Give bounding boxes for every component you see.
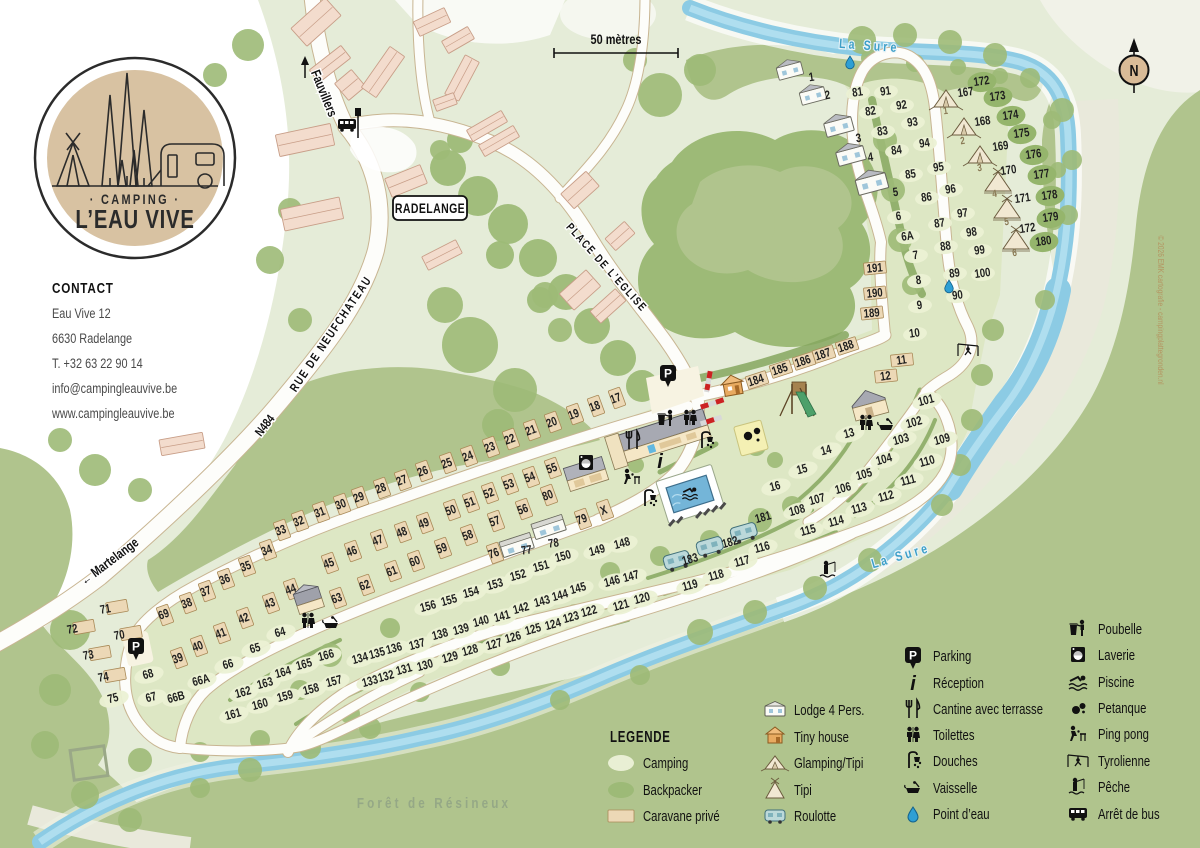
svg-text:6630 Radelange: 6630 Radelange [52, 331, 132, 347]
svg-text:Tipi: Tipi [794, 782, 812, 799]
svg-text:71: 71 [99, 602, 112, 617]
svg-text:189: 189 [863, 306, 880, 321]
svg-text:176: 176 [1025, 147, 1043, 162]
svg-text:98: 98 [965, 225, 977, 240]
svg-text:www.campingleauvive.be: www.campingleauvive.be [51, 406, 174, 422]
svg-text:info@campingleauvive.be: info@campingleauvive.be [52, 381, 177, 397]
svg-text:Caravane privé: Caravane privé [643, 808, 720, 825]
svg-text:Cantine avec terrasse: Cantine avec terrasse [933, 701, 1043, 718]
svg-text:90: 90 [951, 288, 963, 303]
svg-text:L’EAU VIVE: L’EAU VIVE [75, 205, 194, 234]
svg-text:178: 178 [1041, 188, 1059, 203]
svg-text:70: 70 [113, 628, 126, 643]
svg-text:Douches: Douches [933, 753, 978, 770]
svg-text:CONTACT: CONTACT [52, 280, 114, 297]
svg-text:T. +32 63 22 90 14: T. +32 63 22 90 14 [52, 356, 143, 372]
svg-text:91: 91 [879, 84, 891, 99]
svg-text:Toilettes: Toilettes [933, 727, 975, 744]
svg-text:168: 168 [974, 114, 992, 129]
svg-text:78: 78 [547, 536, 559, 551]
svg-text:93: 93 [906, 115, 918, 130]
svg-text:87: 87 [933, 216, 945, 231]
svg-text:Petanque: Petanque [1098, 700, 1146, 717]
svg-text:12: 12 [879, 369, 891, 384]
svg-text:Piscine: Piscine [1098, 674, 1134, 691]
svg-text:© 2026 EMK cartografie - campi: © 2026 EMK cartografie - campingplattegr… [1156, 235, 1166, 384]
svg-text:86: 86 [920, 190, 932, 205]
svg-text:77: 77 [520, 543, 532, 558]
svg-text:92: 92 [895, 98, 907, 113]
svg-text:81: 81 [851, 85, 863, 100]
svg-text:82: 82 [864, 104, 876, 119]
svg-text:180: 180 [1035, 234, 1053, 249]
svg-text:174: 174 [1002, 108, 1020, 124]
svg-text:177: 177 [1033, 167, 1051, 182]
svg-text:Arrêt de bus: Arrêt de bus [1098, 806, 1160, 823]
svg-text:Tyrolienne: Tyrolienne [1098, 753, 1150, 770]
svg-text:50 mètres: 50 mètres [591, 32, 642, 48]
svg-text:Camping: Camping [643, 755, 688, 772]
svg-text:85: 85 [904, 167, 916, 182]
svg-text:Backpacker: Backpacker [643, 782, 703, 799]
svg-text:11: 11 [896, 353, 908, 368]
svg-text:Réception: Réception [933, 675, 984, 692]
svg-text:171: 171 [1014, 191, 1032, 206]
svg-text:73: 73 [82, 648, 95, 663]
svg-text:10: 10 [908, 326, 920, 341]
svg-text:Point d’eau: Point d’eau [933, 806, 990, 823]
svg-text:RADELANGE: RADELANGE [395, 201, 465, 217]
svg-text:172: 172 [1019, 221, 1037, 236]
svg-text:89: 89 [948, 266, 960, 281]
svg-text:175: 175 [1013, 126, 1031, 141]
svg-text:Forêt de Résineux: Forêt de Résineux [357, 795, 511, 812]
svg-text:88: 88 [939, 239, 951, 254]
svg-text:Tiny house: Tiny house [794, 729, 849, 746]
svg-text:Parking: Parking [933, 648, 971, 665]
svg-text:Laverie: Laverie [1098, 647, 1135, 664]
svg-text:191: 191 [866, 261, 883, 276]
svg-text:97: 97 [956, 206, 968, 221]
svg-text:72: 72 [66, 622, 79, 637]
svg-text:99: 99 [973, 243, 985, 258]
svg-text:83: 83 [876, 124, 888, 139]
svg-text:96: 96 [944, 182, 956, 197]
svg-text:6A: 6A [901, 229, 915, 244]
svg-text:173: 173 [989, 89, 1007, 104]
svg-text:Roulotte: Roulotte [794, 808, 836, 825]
svg-text:Poubelle: Poubelle [1098, 621, 1142, 638]
svg-text:Ping pong: Ping pong [1098, 726, 1149, 743]
svg-text:Glamping/Tipi: Glamping/Tipi [794, 755, 863, 772]
svg-text:172: 172 [973, 74, 991, 89]
svg-text:100: 100 [974, 266, 992, 281]
svg-text:Lodge 4 Pers.: Lodge 4 Pers. [794, 702, 864, 719]
svg-text:190: 190 [866, 286, 883, 301]
svg-text:169: 169 [992, 139, 1010, 154]
svg-text:Vaisselle: Vaisselle [933, 780, 977, 797]
svg-text:179: 179 [1042, 210, 1060, 225]
svg-text:170: 170 [1000, 163, 1018, 178]
svg-text:Pêche: Pêche [1098, 779, 1130, 796]
svg-text:Eau Vive 12: Eau Vive 12 [52, 306, 111, 322]
svg-text:LEGENDE: LEGENDE [610, 727, 671, 745]
svg-text:167: 167 [957, 85, 975, 100]
svg-text:N: N [1129, 63, 1138, 81]
svg-text:95: 95 [932, 160, 944, 175]
